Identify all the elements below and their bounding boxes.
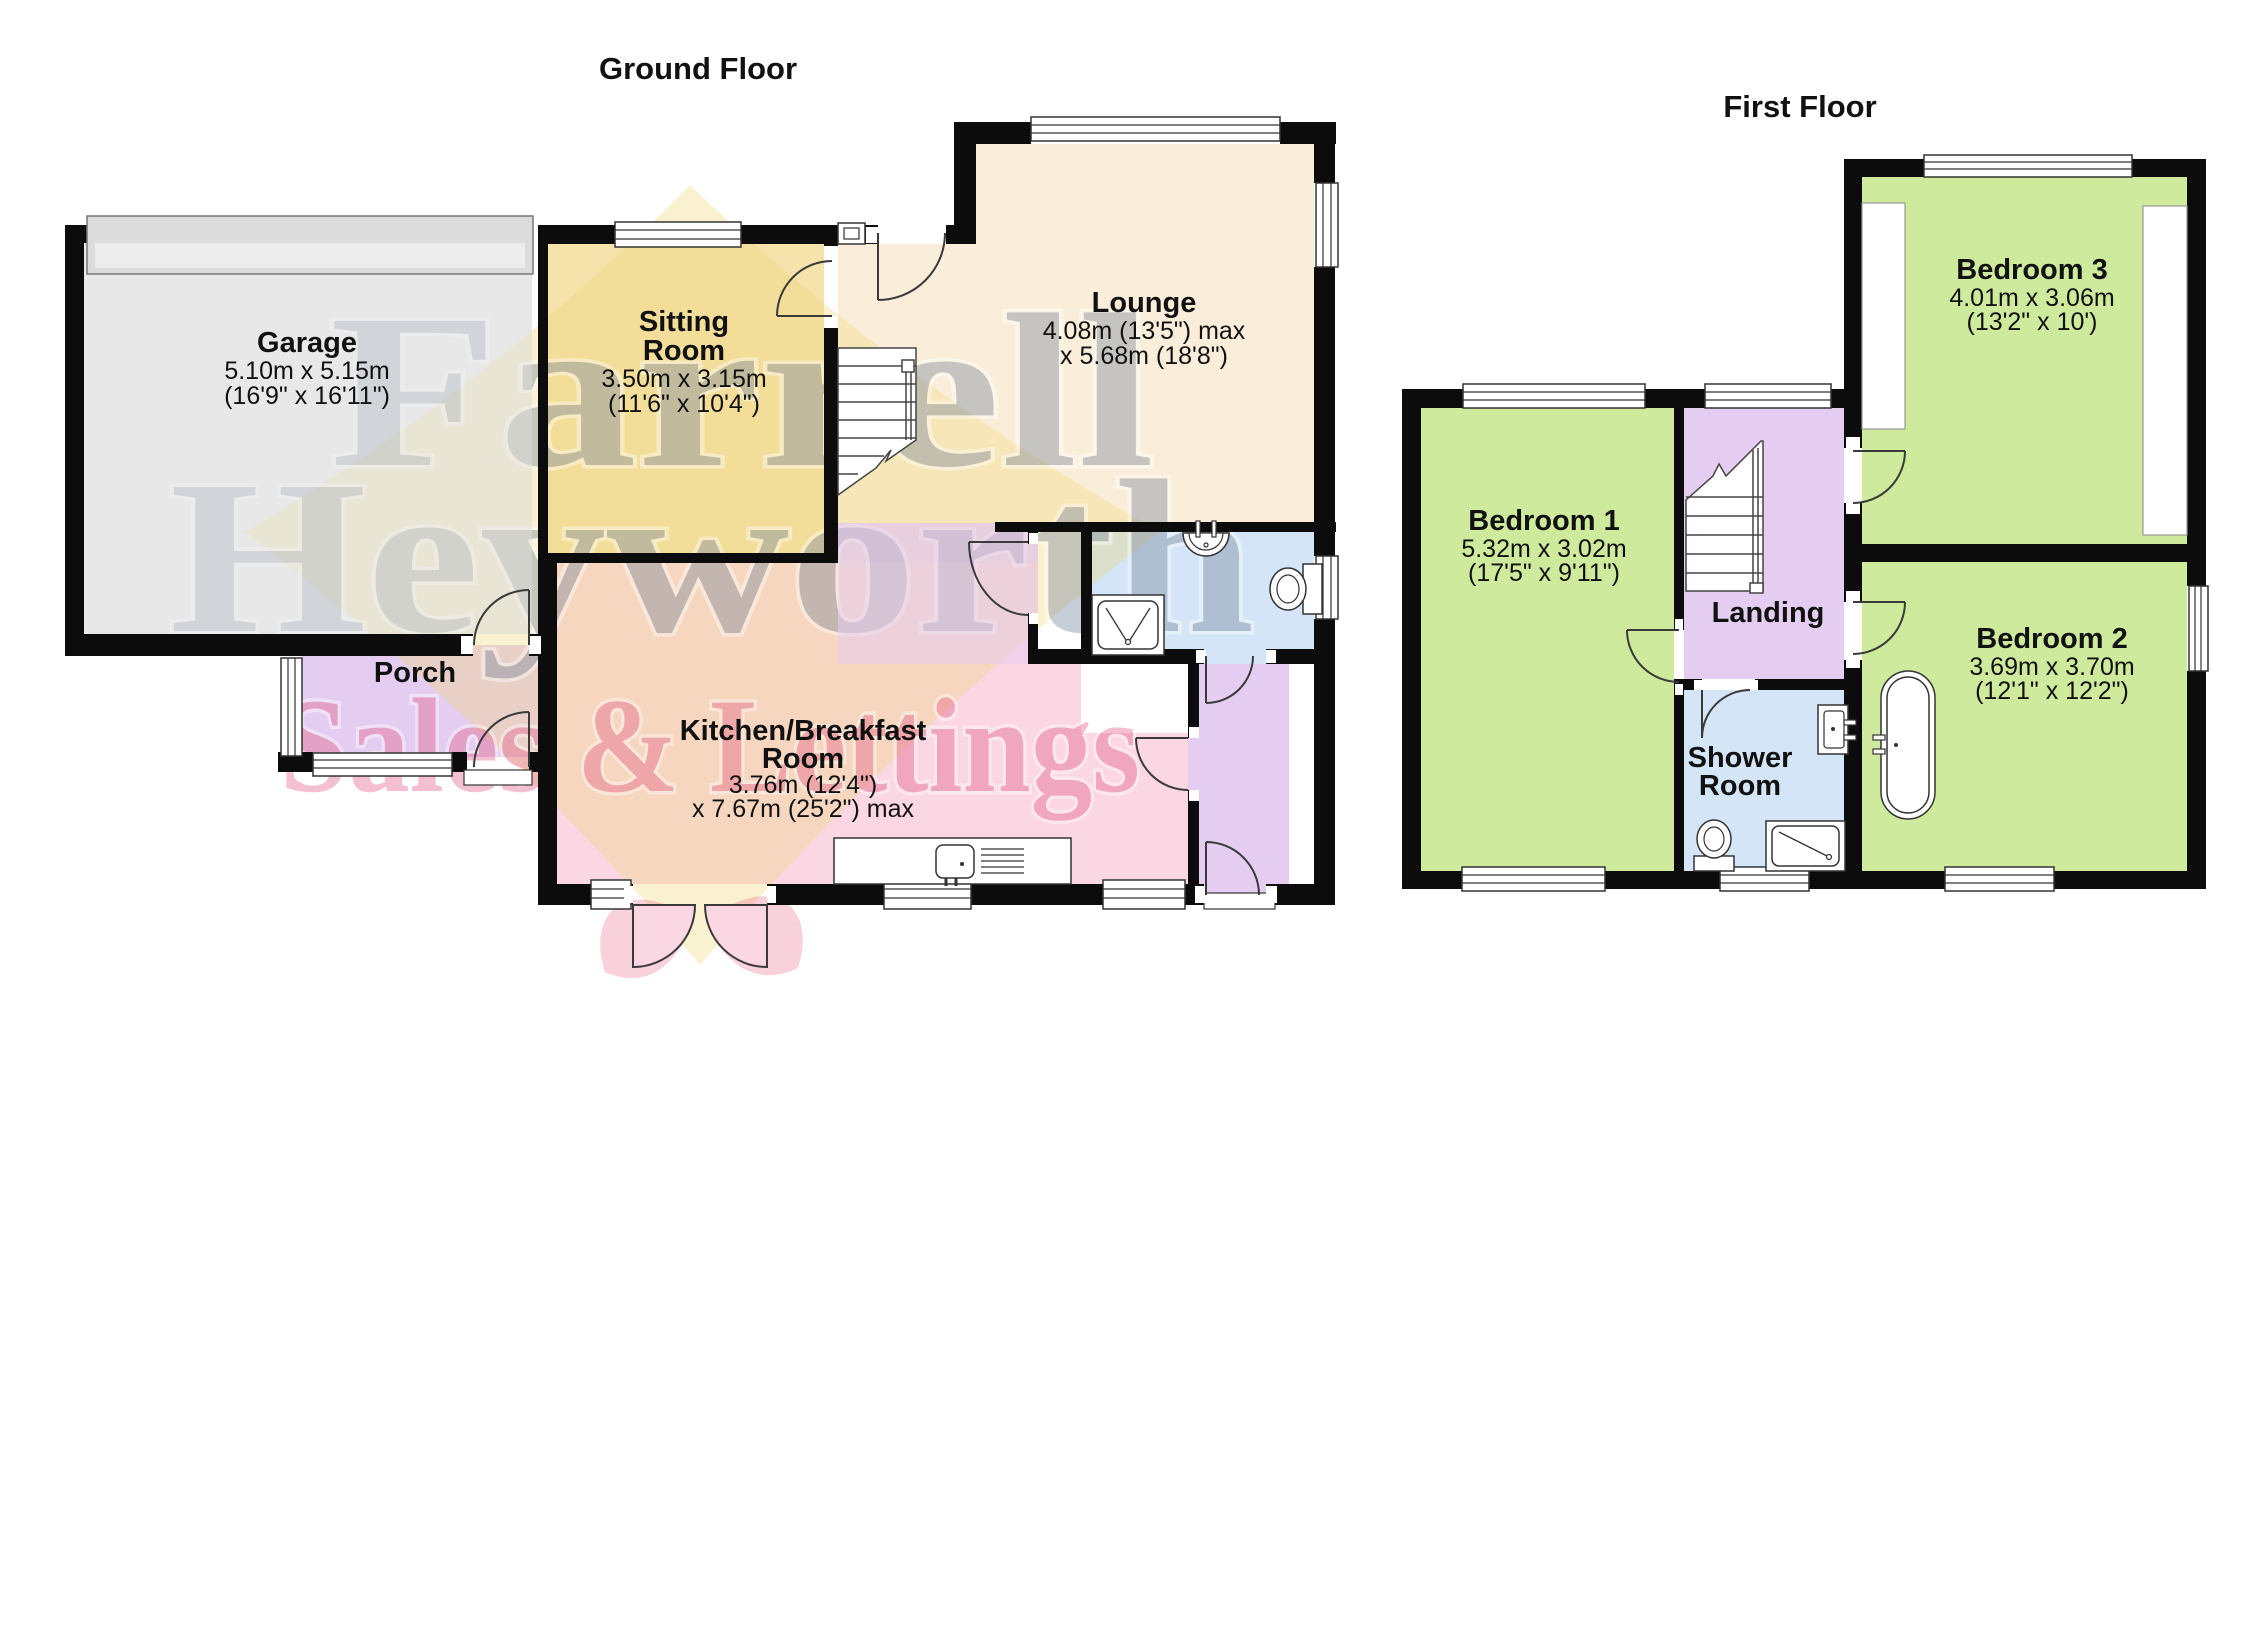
svg-text:Garage: Garage [257, 327, 357, 359]
svg-text:Ground Floor: Ground Floor [599, 51, 797, 86]
svg-text:(12'1" x 12'2"): (12'1" x 12'2") [1975, 677, 2129, 705]
svg-text:Porch: Porch [374, 657, 456, 689]
svg-text:(17'5" x 9'11"): (17'5" x 9'11") [1468, 559, 1620, 587]
svg-text:Bedroom 1: Bedroom 1 [1468, 505, 1619, 537]
svg-text:(16'9" x 16'11"): (16'9" x 16'11") [224, 382, 390, 410]
svg-text:Bedroom 3: Bedroom 3 [1956, 254, 2107, 286]
svg-text:(13'2" x 10'): (13'2" x 10') [1967, 308, 2098, 336]
svg-text:Bedroom 2: Bedroom 2 [1976, 623, 2127, 655]
svg-text:Landing: Landing [1712, 597, 1825, 629]
svg-text:4.08m (13'5") max: 4.08m (13'5") max [1043, 317, 1246, 345]
svg-text:5.10m x 5.15m: 5.10m x 5.15m [224, 357, 389, 385]
svg-text:(11'6" x 10'4"): (11'6" x 10'4") [608, 390, 760, 418]
svg-text:3.50m x 3.15m: 3.50m x 3.15m [601, 365, 766, 393]
svg-text:x 7.67m (25'2") max: x 7.67m (25'2") max [692, 795, 915, 823]
svg-text:Sitting: Sitting [639, 306, 729, 338]
svg-text:Room: Room [643, 335, 725, 367]
svg-text:Room: Room [1699, 770, 1781, 802]
svg-text:x 5.68m (18'8"): x 5.68m (18'8") [1060, 342, 1228, 370]
svg-text:First Floor: First Floor [1723, 89, 1876, 124]
svg-text:Lounge: Lounge [1092, 287, 1197, 319]
